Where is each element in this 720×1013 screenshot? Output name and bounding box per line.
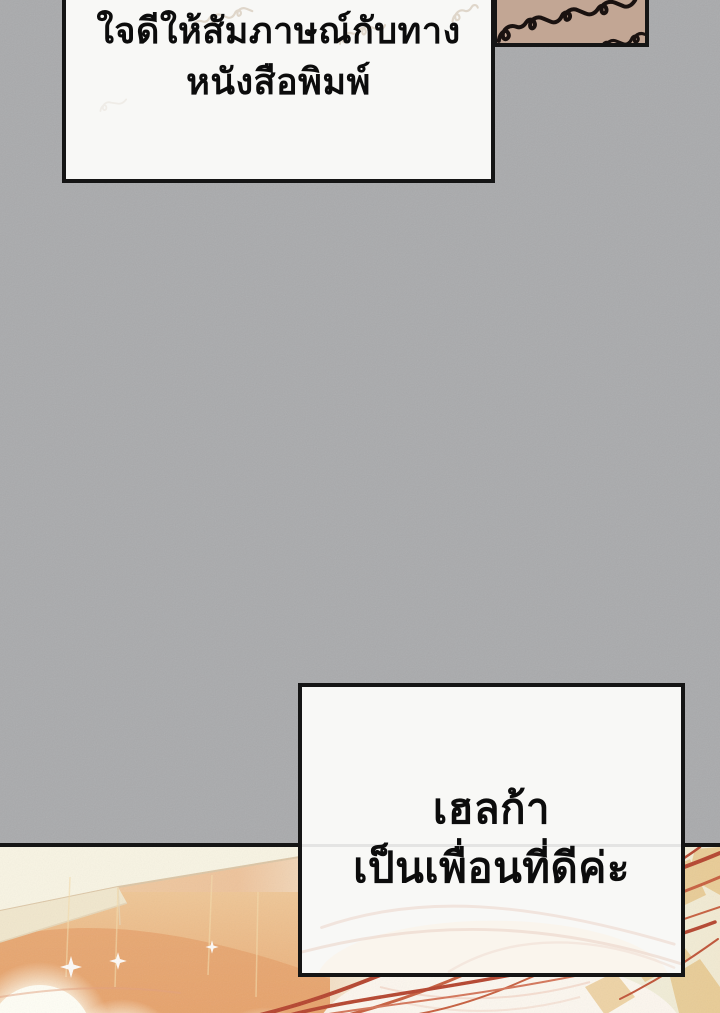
- top-speech-line-2: หนังสือพิมพ์: [66, 57, 491, 108]
- speech-box-bottom: เฮลก้า เป็นเพื่อนที่ดีค่ะ: [298, 683, 685, 977]
- handwritten-letter-panel: [493, 0, 649, 47]
- bottom-speech-line-2: เป็นเพื่อนที่ดีค่ะ: [353, 838, 630, 897]
- handwriting-scribble-icon: [497, 0, 649, 47]
- top-speech-line-1: ใจดีให้สัมภาษณ์กับทาง: [66, 6, 491, 57]
- bottom-speech-line-1: เฮลก้า: [433, 779, 550, 838]
- speech-box-top: ใจดีให้สัมภาษณ์กับทาง หนังสือพิมพ์: [62, 0, 495, 183]
- comic-page: ใจดีให้สัมภาษณ์กับทาง หนังสือพิมพ์: [0, 0, 720, 1013]
